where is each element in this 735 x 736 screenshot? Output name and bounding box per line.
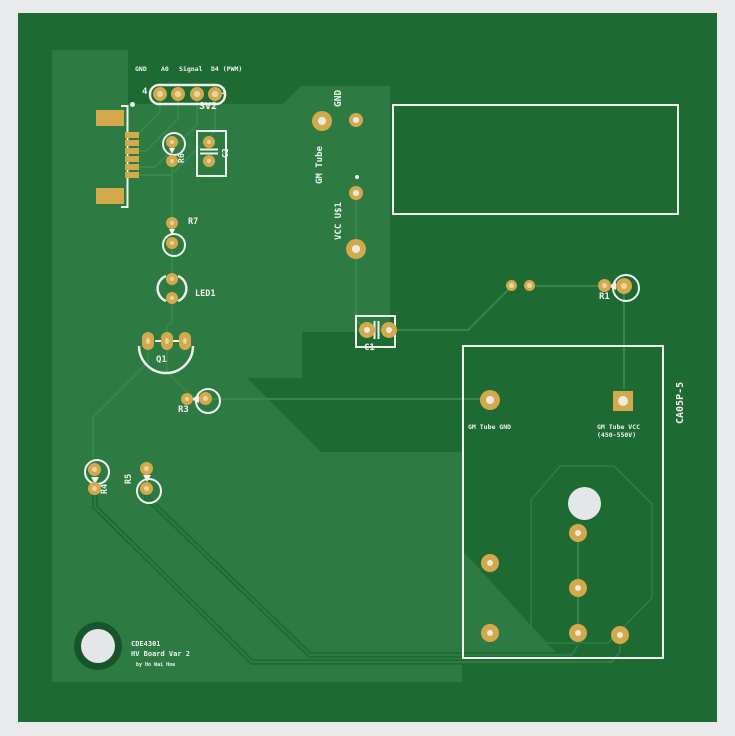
hv-part-name: CA05P-5	[677, 382, 685, 424]
gm-tube-net-label: GM Tube	[316, 146, 324, 184]
c1-ref: C1	[364, 344, 375, 352]
sv2-pin-label-gnd: GND	[135, 65, 147, 73]
led1-ref: LED1	[195, 290, 215, 298]
pcb-render: GND A0 Signal D4 (PWM) 4 1 SV2 R6 C2 R7 …	[0, 0, 735, 736]
sv2-pad-4	[153, 87, 167, 101]
u1-pad	[349, 186, 363, 200]
r3-ref: R3	[178, 406, 189, 414]
connector-pin-1	[125, 132, 139, 138]
q1-pad-3	[179, 332, 191, 350]
title-line1: CDE4301	[131, 640, 161, 648]
vcc-net-label: VCC U$1	[335, 202, 343, 240]
r1-pad-1	[598, 279, 611, 292]
gm-tube-vcc-label: GM Tube VCC	[597, 423, 640, 431]
q1-pad-2	[161, 332, 173, 350]
r7-ref: R7	[188, 218, 198, 226]
gm-tube-vcc-hole	[618, 396, 628, 406]
c1-pad-1	[359, 322, 375, 338]
gm-tube-pad	[312, 111, 332, 131]
r7-pad-1	[166, 217, 178, 229]
hv-hole-5	[481, 554, 499, 572]
vcc-pad	[346, 239, 366, 259]
connector-pad-top	[96, 110, 124, 126]
led1-pad-2	[166, 292, 178, 304]
r4-pad-1	[88, 463, 101, 476]
sv2-pin-label-d4: D4 (PWM)	[211, 65, 242, 73]
sv2-ref: SV2	[199, 103, 217, 111]
title-line3: by Ho Wai Hoe	[136, 661, 175, 669]
c2-ref: C2	[222, 148, 230, 158]
connector-pin1-dot	[130, 102, 135, 107]
sv2-pin-label-a0: A0	[161, 65, 169, 73]
hv-block-big-hole	[568, 487, 601, 520]
connector-pin-4	[125, 156, 139, 162]
gm-tube-vcc-range-label: (450-550V)	[597, 431, 636, 439]
q1-pad-1	[142, 332, 154, 350]
connector-pin-3	[125, 148, 139, 154]
sv2-pad-2	[190, 87, 204, 101]
gnd-pad	[349, 113, 363, 127]
c2-pad-1	[203, 136, 215, 148]
c2-pad-2	[203, 155, 215, 167]
sv2-pin1-number: 1	[221, 88, 226, 96]
r1-pad-2	[616, 278, 632, 294]
c1-pad-2	[381, 322, 397, 338]
hv-hole-1	[569, 524, 587, 542]
connector-pad-bottom	[96, 188, 124, 204]
hv-hole-3	[569, 624, 587, 642]
hv-hole-6	[481, 624, 499, 642]
connector-pin-5	[125, 164, 139, 170]
r7-pad-2	[166, 237, 178, 249]
via-2	[524, 280, 535, 291]
led1-pad-1	[166, 273, 178, 285]
sv2-pin-label-signal: Signal	[179, 65, 202, 73]
r3-pad-2	[199, 392, 212, 405]
via-1	[506, 280, 517, 291]
hv-hole-4	[611, 626, 629, 644]
connector-pin-2	[125, 140, 139, 146]
mounting-hole	[81, 629, 115, 663]
r6-ref: R6	[178, 153, 186, 163]
u1-module-outline	[392, 104, 679, 215]
gnd-net-label: GND	[335, 90, 343, 107]
sv2-pin4-number: 4	[142, 88, 147, 96]
r3-pad-1	[181, 393, 193, 405]
r5-pad-1	[140, 462, 153, 475]
r5-ref: R5	[125, 474, 133, 484]
gm-tube-gnd-label: GM Tube GND	[468, 423, 511, 431]
q1-ref: Q1	[156, 356, 167, 364]
sv2-pad-1	[208, 87, 222, 101]
gm-tube-gnd-pad	[480, 390, 500, 410]
r1-ref: R1	[599, 293, 610, 301]
u1-pin-dot	[355, 175, 359, 179]
r6-pad-1	[166, 136, 178, 148]
connector-pin-6	[125, 172, 139, 178]
r4-ref: R4	[101, 484, 109, 494]
hv-hole-2	[569, 579, 587, 597]
title-line2: HV Board Var 2	[131, 650, 190, 658]
r5-pad-2	[140, 482, 153, 495]
sv2-pad-3	[171, 87, 185, 101]
